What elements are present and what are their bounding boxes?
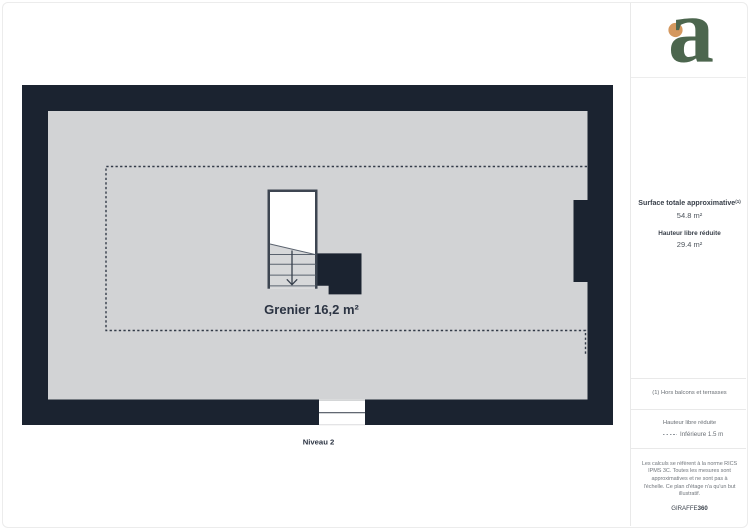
svg-text:Grenier 16,2 m²: Grenier 16,2 m² xyxy=(264,302,359,317)
svg-text:Niveau 2: Niveau 2 xyxy=(303,437,335,446)
svg-text:a: a xyxy=(668,0,714,82)
